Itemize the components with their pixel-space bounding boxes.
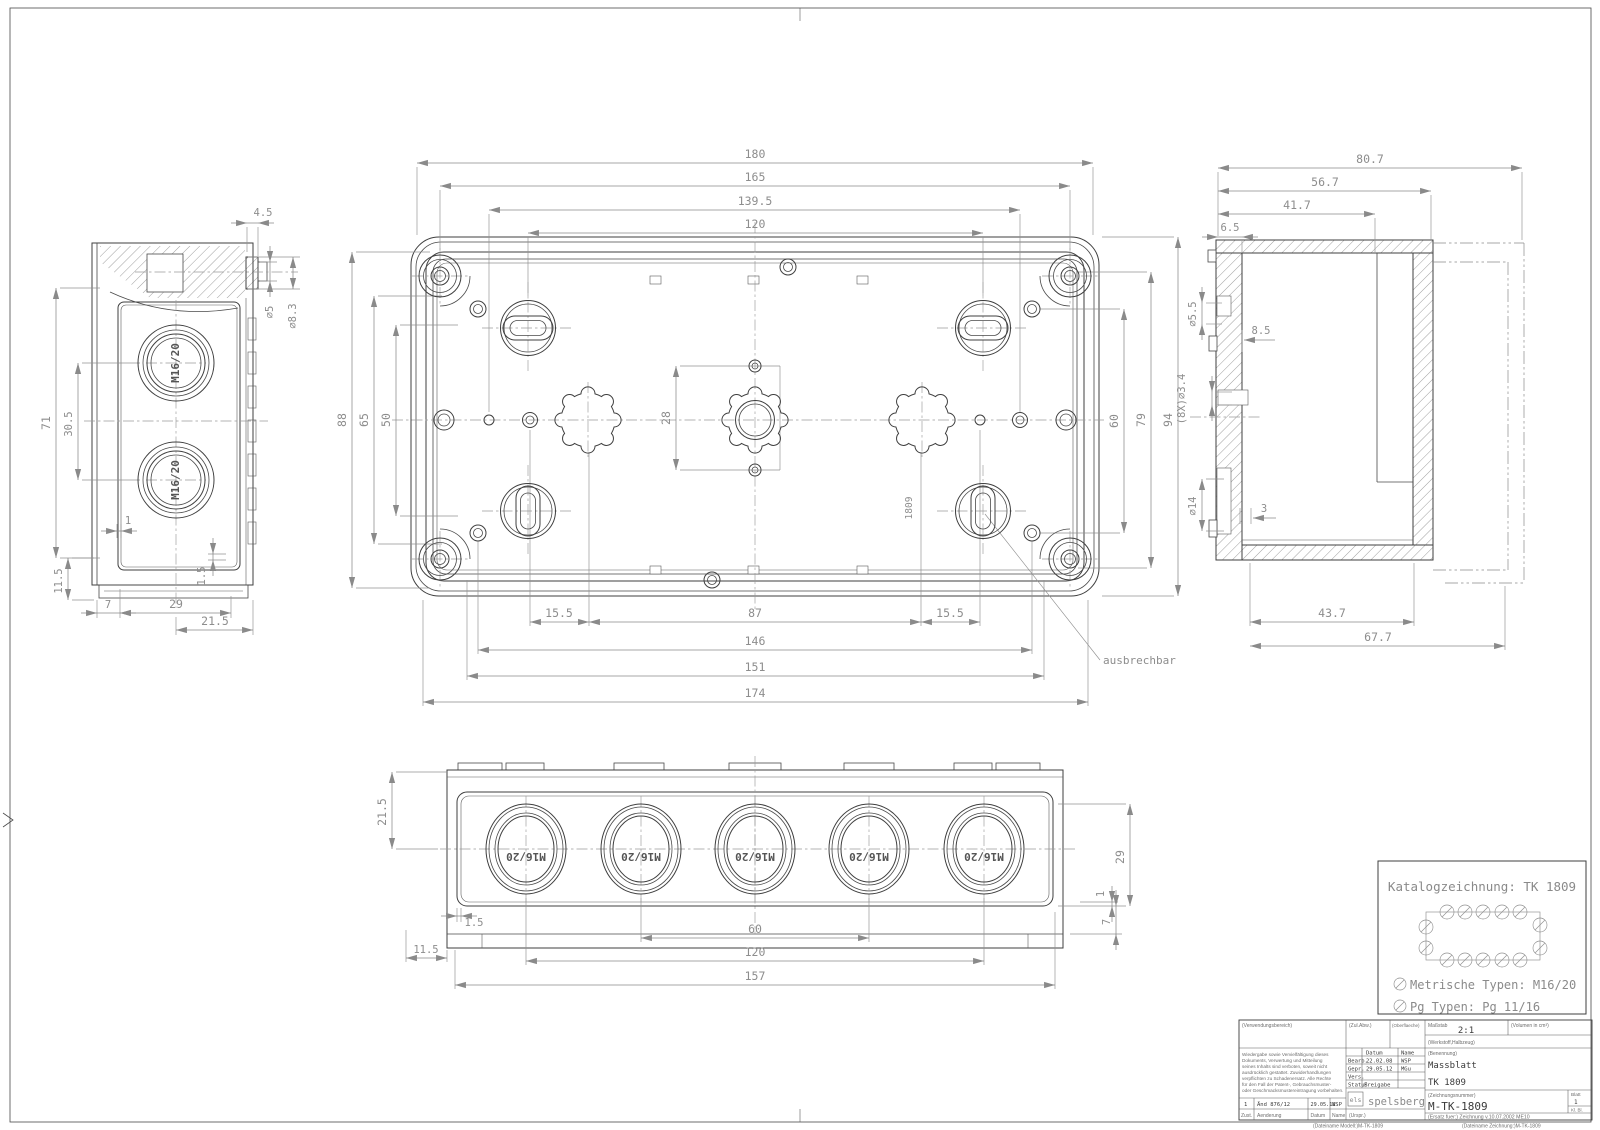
dim-text-rv_67_7: 67.7: [1364, 630, 1392, 644]
catalog-title: Katalogzeichnung: TK 1809: [1388, 879, 1576, 894]
dim-text-rv_dia14: ∅14: [1187, 497, 1199, 516]
hole-circle: [474, 305, 483, 314]
knockout-label: M16/20: [735, 850, 775, 863]
dim-text-tv_15_5b: 15.5: [936, 606, 964, 620]
dim-text-bv_60: 60: [748, 922, 762, 936]
title-block-text: Dokuments, Verwertung und Mitteilung: [1242, 1058, 1323, 1063]
dim-text-bv_157: 157: [745, 969, 766, 983]
title-block-text: els: [1350, 1096, 1362, 1104]
title-block-text: (Ersatz fuer:) Zeichnung v.10.07.2002 ME…: [1428, 1115, 1530, 1121]
title-block-text: Datum: [1366, 1051, 1383, 1057]
dim-text-lv_21_5: 21.5: [201, 614, 229, 628]
hole-circle: [1024, 525, 1040, 541]
dim-text-bv_120: 120: [745, 945, 766, 959]
dim-text-tv_79: 79: [1134, 413, 1148, 427]
title-block-text: 22.02.08: [1366, 1059, 1393, 1065]
frame-fold-mark: [3, 813, 13, 827]
title-block-text: Gepr.: [1348, 1067, 1365, 1073]
title-block-text: Kl. Bl.: [1571, 1108, 1583, 1113]
dim-text-rv_3: 3: [1261, 503, 1267, 515]
dim-text-tv_180: 180: [745, 147, 766, 161]
dim-text-rv_56_7: 56.7: [1311, 175, 1339, 189]
dim-text-tv_65: 65: [357, 413, 371, 427]
catalog-metric-types: Metrische Typen: M16/20: [1410, 978, 1576, 992]
hole-circle: [784, 263, 793, 272]
dim-text-rv_dia3_4: (8X)∅3.4: [1176, 374, 1188, 425]
title-block-text: (Dateiname Modell:)M-TK-1809: [1313, 1124, 1383, 1130]
title-block-text: für den Fall der Patent-, Gebrauchsmuste…: [1242, 1082, 1332, 1087]
dim-text-tv_50: 50: [379, 413, 393, 427]
dim-text-lv_71: 71: [39, 416, 53, 430]
dim-text-bv_1_5: 1.5: [465, 917, 484, 929]
dim-text-rv_43_7: 43.7: [1318, 606, 1346, 620]
knockout-label: M16/20: [169, 460, 182, 500]
dim-text-bv_29: 29: [1113, 850, 1127, 864]
knockout-label: M16/20: [169, 343, 182, 383]
title-block-text: Freigabe: [1364, 1083, 1391, 1089]
dim-text-tv_15_5a: 15.5: [545, 606, 573, 620]
title-block-text: MGu: [1401, 1067, 1411, 1073]
right-section-view: [1208, 240, 1433, 560]
dim-text-tv_28: 28: [659, 411, 673, 425]
title-block-text: Datum: [1311, 1113, 1326, 1119]
title-block-text: (Benennung): [1428, 1051, 1457, 1057]
hole-circle: [1028, 305, 1037, 314]
title-block-text: 1: [1244, 1102, 1247, 1108]
dim-text-tv_87: 87: [748, 606, 762, 620]
knockout-label: M16/20: [506, 850, 546, 863]
title-block-text: Wiedergabe sowie Vervielfältigung dieses: [1242, 1052, 1329, 1057]
title-block-text: seines Inhalts sind verboten, soweit nic…: [1242, 1064, 1328, 1069]
knockout-label: M16/20: [964, 850, 1004, 863]
knockout-label: M16/20: [621, 850, 661, 863]
dim-text-rv_41_7: 41.7: [1283, 198, 1311, 212]
hole-circle: [708, 576, 717, 585]
title-block-text: (Werkstoff,Halbzeug): [1428, 1040, 1475, 1046]
dim-text-bv_11_5: 11.5: [413, 944, 438, 956]
dim-text-tv_139_5: 139.5: [738, 194, 773, 208]
ausbrechbar-label: ausbrechbar: [1103, 654, 1176, 667]
title-block-text: (Zul.Abw.): [1349, 1023, 1372, 1029]
dim-text-tv_94: 94: [1161, 413, 1175, 427]
title-block-text: Bearb.: [1348, 1059, 1368, 1065]
hole-circle: [1024, 301, 1040, 317]
knockout-label: M16/20: [849, 850, 889, 863]
dim-text-lv_1_5: 1.5: [196, 567, 208, 586]
dim-text-tv_165: 165: [745, 170, 766, 184]
title-block-text: (Volumen in cm³): [1511, 1023, 1549, 1029]
left-side-view: [92, 243, 267, 598]
dim-text-lv_4_5: 4.5: [254, 207, 273, 219]
dim-text-rv_6_5: 6.5: [1221, 222, 1240, 234]
dim-text-lv_30_5: 30.5: [63, 411, 75, 436]
title-block-text: spelsberg: [1368, 1096, 1425, 1108]
dim-text-lv_dia8_3: ∅8.3: [287, 303, 299, 328]
title-block-text: Blatt: [1571, 1092, 1581, 1098]
title-block-text: Name: [1401, 1051, 1414, 1057]
dim-text-lv_29: 29: [169, 597, 183, 611]
dim-text-bv_7: 7: [1101, 919, 1113, 925]
dim-text-rv_80_7: 80.7: [1356, 152, 1384, 166]
dim-text-tv_88: 88: [335, 413, 349, 427]
title-block-text: (Oberflaeche): [1392, 1023, 1420, 1028]
title-block-text: 1: [1574, 1099, 1578, 1106]
title-block-text: 29.05.12: [1366, 1067, 1393, 1073]
dim-text-tv_146: 146: [745, 634, 766, 648]
dim-text-tv_174: 174: [745, 686, 766, 700]
title-block-text: verpflichten zu Schadenersatz. Alle Rech…: [1242, 1076, 1332, 1081]
title-block-text: Name: [1332, 1113, 1346, 1119]
title-block-text: 2:1: [1458, 1026, 1474, 1036]
title-block-text: (Urspr.): [1349, 1113, 1366, 1119]
dim-text-rv_8_5: 8.5: [1252, 325, 1271, 337]
dim-text-lv_11_5: 11.5: [53, 568, 65, 593]
wall-notch: [650, 276, 661, 284]
title-block-text: Zust.: [1241, 1113, 1252, 1119]
title-block-text: ausdrücklich gestattet. Zuwiderhandlunge…: [1242, 1070, 1332, 1075]
dim-text-lv_dia5: ∅5: [264, 306, 276, 319]
dim-text-lv_1: 1: [125, 515, 131, 527]
title-block-text: M-TK-1809: [1428, 1100, 1488, 1113]
title-block-text: WSP: [1332, 1102, 1343, 1108]
title-block-text: (Verwendungsbereich): [1242, 1023, 1292, 1029]
catalog-pg-types: Pg Typen: Pg 11/16: [1410, 1000, 1540, 1014]
mold-stamp: 1809: [904, 496, 915, 519]
hole-circle: [780, 259, 796, 275]
drawing-page: M16/20M16/20M16/20M16/20M16/20180165139.…: [0, 0, 1600, 1130]
dim-text-bv_21_5: 21.5: [375, 798, 389, 826]
knockout-symbol-slash: [1396, 980, 1405, 989]
dim-text-bv_1: 1: [1095, 891, 1107, 897]
title-block-text: (Zeichnungsnummer): [1428, 1093, 1476, 1099]
title-block-text: Maßstab: [1428, 1023, 1448, 1029]
drawing-frame: [3, 8, 1591, 1122]
hole-circle: [474, 529, 483, 538]
hole-circle: [470, 525, 486, 541]
dim-text-tv_120: 120: [745, 217, 766, 231]
title-block-text: WSP: [1401, 1059, 1412, 1065]
title-block-text: Massblatt: [1428, 1061, 1477, 1071]
title-block-text: TK 1809: [1428, 1078, 1466, 1088]
knockout-symbol-slash: [1396, 1002, 1405, 1011]
dim-text-tv_151: 151: [745, 660, 766, 674]
title-block-text: Änd 876/12: [1257, 1101, 1290, 1108]
dim-text-tv_60: 60: [1107, 414, 1121, 428]
title-block-text: (Dateiname Zeichnung:)M-TK-1809: [1462, 1124, 1541, 1130]
dim-text-rv_dia5_5: ∅5.5: [1187, 301, 1199, 326]
title-block-text: Vers.: [1348, 1075, 1365, 1081]
hole-circle: [1028, 529, 1037, 538]
title-block-text: oder Geschmacksmustereintragung vorbehal…: [1242, 1088, 1343, 1093]
title-block-text: Aenderung: [1257, 1113, 1282, 1119]
hole-circle: [470, 301, 486, 317]
dim-text-lv_7: 7: [105, 599, 111, 611]
